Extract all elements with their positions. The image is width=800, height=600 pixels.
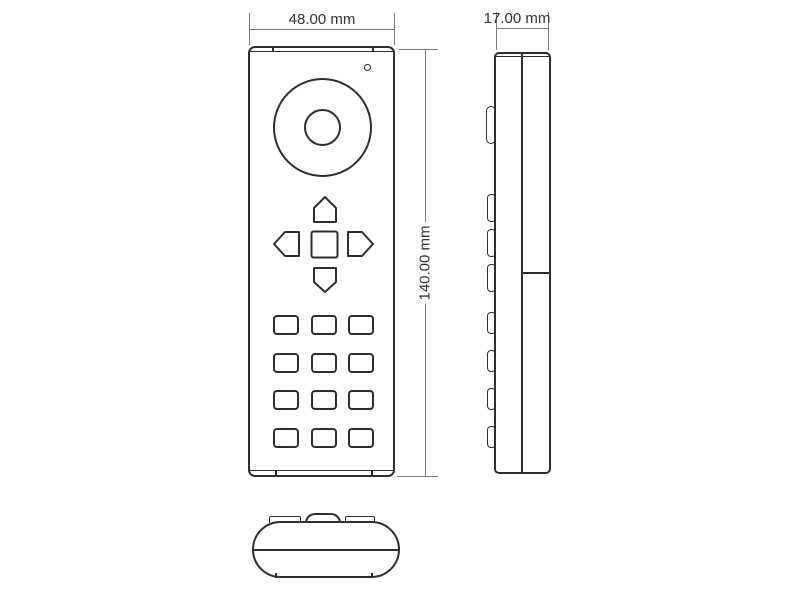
keypad-button [273,390,299,410]
scroll-wheel-center-button [304,109,341,146]
dimension-height-label: 140.00 mm [417,222,434,303]
front-top-tick-left [272,47,274,52]
keypad-button [311,390,337,410]
keypad-button [311,428,337,448]
dimension-width-label: 48.00 mm [248,11,396,28]
bottom-parting-line [254,549,398,551]
front-bottom-tick-right [371,470,373,475]
dpad-down-button [314,268,336,292]
front-top-tick-right [372,47,374,52]
keypad-button [273,428,299,448]
dimension-depth-label: 17.00 mm [472,10,562,27]
dimension-height-extension-bottom [397,476,438,477]
keypad-button [273,315,299,335]
keypad-button [311,353,337,373]
dpad [272,195,375,295]
keypad-button [348,428,374,448]
dimension-width-line [249,29,395,30]
keypad-grid [273,315,374,448]
side-parting-line [521,53,523,473]
dpad-center-button [312,232,338,258]
bottom-tick-left [275,573,277,578]
keypad-button [348,315,374,335]
dpad-right-button [348,232,373,256]
side-top-edge-line [496,56,549,57]
dimension-height-extension-top [399,49,438,50]
dpad-left-button [274,232,299,256]
keypad-button [311,315,337,335]
bottom-tick-right [371,573,373,578]
keypad-button [348,353,374,373]
front-bottom-tick-left [275,470,277,475]
dpad-up-button [314,197,336,222]
technical-drawing-canvas: 48.00 mm 17.00 mm 140.00 mm [0,0,800,600]
keypad-button [273,353,299,373]
side-back-split-line [523,272,550,274]
led-indicator [364,64,371,71]
keypad-button [348,390,374,410]
dimension-depth-line [496,28,549,29]
